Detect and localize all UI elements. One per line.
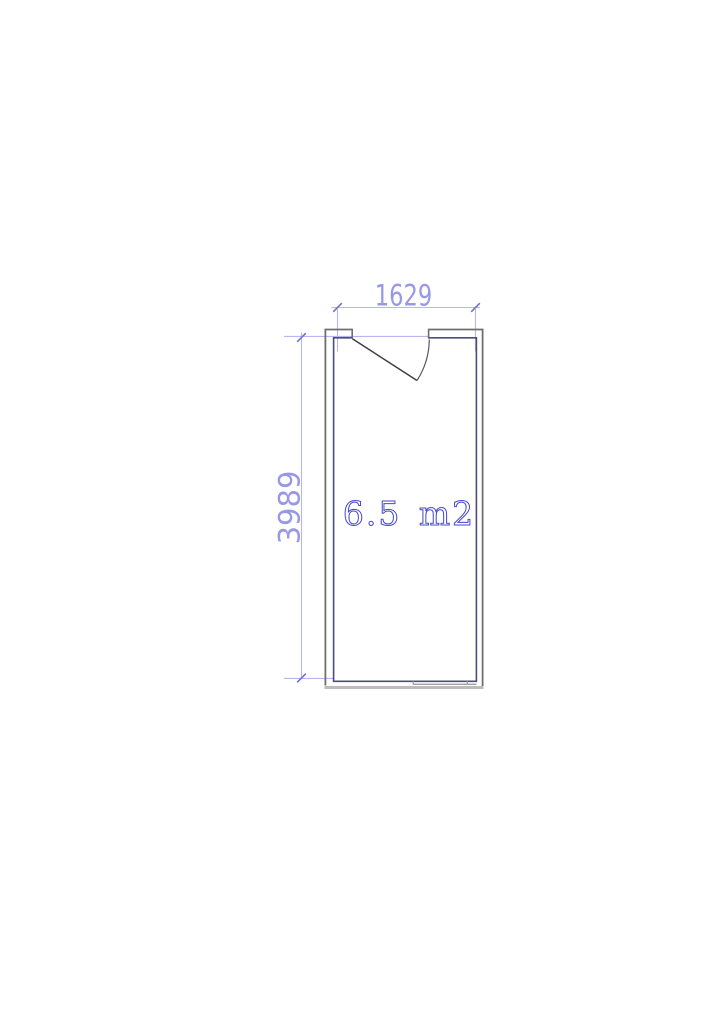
door-swing-arc <box>417 340 429 381</box>
floor-plan-drawing: 1629 3989 <box>0 0 724 1024</box>
dimension-width-value: 1629 <box>375 280 433 313</box>
dimension-height-value: 3989 <box>273 471 307 545</box>
door <box>352 339 429 381</box>
dimension-width: 1629 <box>332 280 481 352</box>
room-area-label: 6.5 m2 <box>343 494 475 533</box>
door-leaf <box>352 339 417 381</box>
page-canvas: 1629 3989 <box>0 0 724 1024</box>
